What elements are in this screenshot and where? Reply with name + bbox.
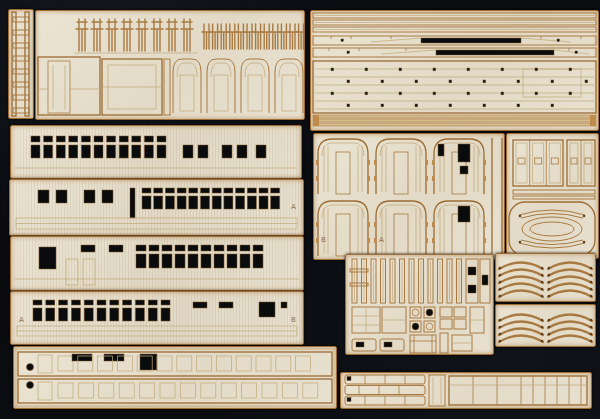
door-group-2 bbox=[567, 140, 595, 186]
sheet-doors-oval bbox=[506, 133, 599, 259]
side-a1-cuts bbox=[11, 126, 301, 178]
sheet-roof-ribs-1 bbox=[495, 253, 596, 302]
laminated-step-strips bbox=[313, 115, 596, 126]
side-a2-cuts: A bbox=[10, 180, 303, 235]
slotted-batten-2 bbox=[313, 48, 596, 57]
partial-column-edge bbox=[492, 138, 502, 254]
rib-strips bbox=[350, 259, 462, 303]
seat-sprue-large bbox=[74, 19, 198, 53]
drilled-hole bbox=[27, 382, 34, 389]
roof-floor-cuts bbox=[311, 11, 598, 130]
sheet-ladder bbox=[8, 9, 34, 119]
seat-sprue-small bbox=[202, 24, 304, 49]
etched-letter: A bbox=[19, 316, 24, 324]
narrow-strip bbox=[164, 59, 170, 115]
strip bbox=[513, 196, 595, 199]
long-strips bbox=[313, 13, 596, 32]
ladder-cuts bbox=[9, 10, 33, 118]
carriage-side-b-upper bbox=[10, 236, 304, 291]
sheet-small-parts bbox=[345, 254, 494, 355]
segmented-strip bbox=[449, 376, 587, 405]
etched-letter: A bbox=[291, 203, 296, 211]
small-rect-parts bbox=[440, 307, 484, 333]
carriage-side-b-lower: A B bbox=[10, 291, 304, 345]
drilled-hole bbox=[27, 364, 34, 371]
photo-laser-cut-kit: A A B bbox=[0, 0, 600, 419]
sheet-roof-and-floor bbox=[310, 10, 599, 131]
wall-panel-plain bbox=[102, 59, 162, 115]
end-panel bbox=[429, 375, 445, 406]
sheet-arched-ends: B A bbox=[313, 133, 505, 260]
door-group-1 bbox=[513, 140, 563, 186]
arched-ends-cuts: B A bbox=[314, 134, 504, 259]
arched-partitions bbox=[173, 59, 303, 113]
slotted-batten-1 bbox=[313, 36, 596, 45]
floor-plate bbox=[313, 61, 596, 113]
side-b2-cuts: A B bbox=[11, 292, 303, 344]
carriage-side-a-lower: A bbox=[9, 179, 304, 236]
ribs2-cuts bbox=[496, 305, 595, 346]
glazing-cuts bbox=[14, 347, 336, 408]
slotted-pieces bbox=[466, 259, 490, 303]
bench-and-frame-parts bbox=[352, 333, 472, 353]
sheet-glazing-strips bbox=[13, 346, 337, 409]
sheet-footboards bbox=[340, 372, 592, 409]
side-b1-cuts bbox=[11, 237, 303, 290]
glazing-strip-1 bbox=[18, 352, 332, 376]
footboard-cuts bbox=[341, 373, 591, 408]
stacked-strips bbox=[345, 375, 425, 405]
ribs1-cuts bbox=[496, 254, 595, 301]
small-parts-cuts bbox=[346, 255, 493, 354]
oval-roof-end-frame bbox=[509, 202, 595, 256]
doors-oval-cuts bbox=[507, 134, 598, 258]
window-cutouts bbox=[438, 144, 470, 222]
strip bbox=[513, 190, 595, 194]
etched-letter: B bbox=[321, 236, 326, 244]
walls-seats-cuts bbox=[36, 11, 304, 119]
wall-panel-with-door bbox=[38, 57, 100, 115]
sheet-roof-ribs-2 bbox=[495, 304, 596, 347]
etched-letter: B bbox=[291, 316, 296, 324]
sheet-walls-and-seats bbox=[35, 10, 305, 120]
etched-letter: A bbox=[379, 236, 384, 244]
door-slot bbox=[130, 188, 135, 218]
carriage-side-a-upper bbox=[10, 125, 302, 179]
table-panels bbox=[352, 307, 406, 333]
washer-squares bbox=[410, 307, 435, 332]
